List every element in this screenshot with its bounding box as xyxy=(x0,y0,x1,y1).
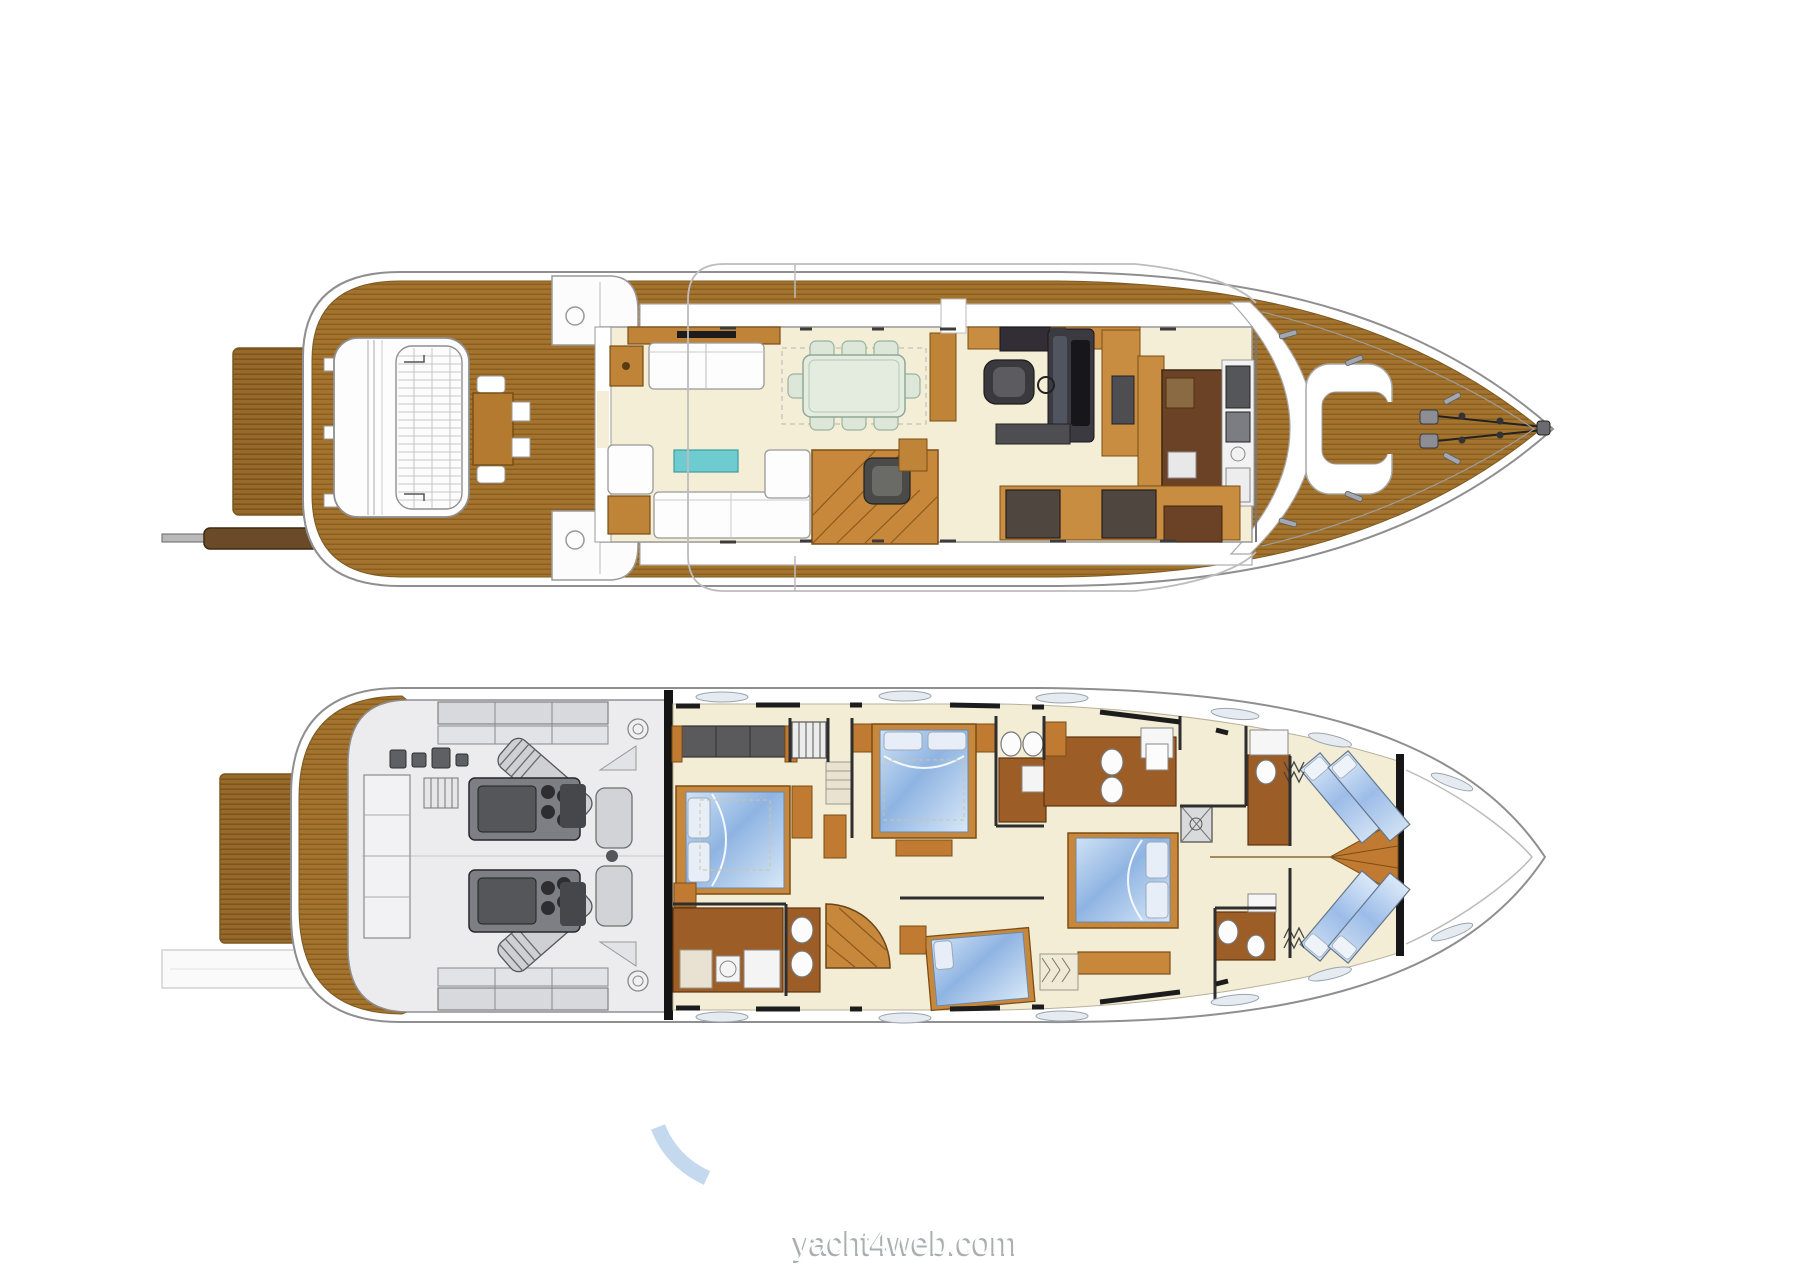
svg-text:yacht4web.com: yacht4web.com xyxy=(794,1224,1018,1262)
